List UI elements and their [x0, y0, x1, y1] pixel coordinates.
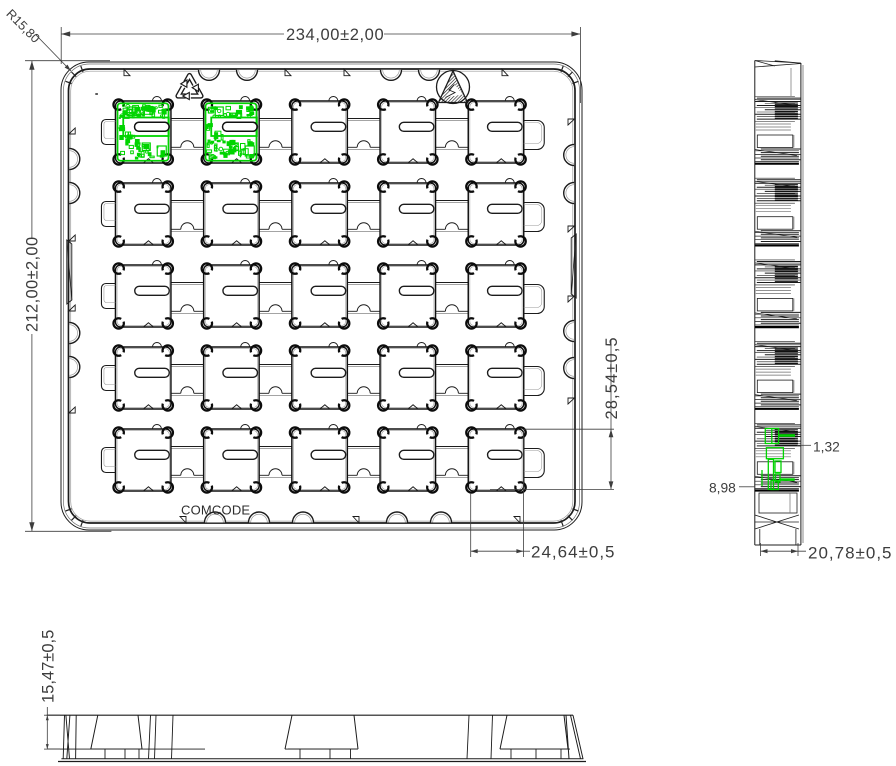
svg-text:R15,80: R15,80 [3, 6, 43, 46]
svg-text:20,78±0,5: 20,78±0,5 [808, 544, 893, 563]
svg-text:COMCODE: COMCODE [181, 503, 250, 518]
svg-text:212,00±2,00: 212,00±2,00 [24, 237, 42, 333]
svg-text:24,64±0,5: 24,64±0,5 [531, 543, 616, 562]
svg-text:8,98: 8,98 [709, 481, 736, 496]
svg-text:1,32: 1,32 [813, 440, 840, 455]
svg-text:234,00±2,00: 234,00±2,00 [286, 26, 384, 44]
svg-text:15,47±0,5: 15,47±0,5 [40, 630, 58, 703]
svg-text:28,54±0,5: 28,54±0,5 [603, 336, 621, 419]
